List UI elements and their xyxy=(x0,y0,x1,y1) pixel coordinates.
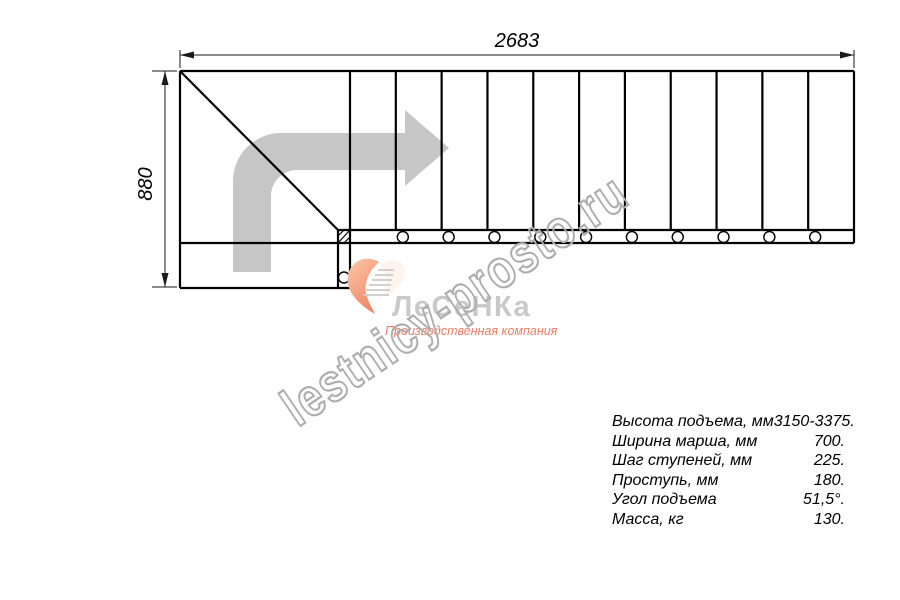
spec-value: 700. xyxy=(814,432,845,452)
spec-label: Высота подъема, мм xyxy=(612,412,774,432)
spec-label: Проступь, мм xyxy=(612,471,718,491)
bolt-hole xyxy=(672,232,683,243)
dimension-left: 880 xyxy=(135,71,177,287)
dimension-top: 2683 xyxy=(180,30,854,68)
direction-arrow xyxy=(233,110,449,272)
spec-label: Угол подъема xyxy=(612,490,717,510)
spec-row: Шаг ступеней, мм225. xyxy=(612,451,845,471)
bolt-hole xyxy=(718,232,729,243)
dimension-left-label: 880 xyxy=(135,167,157,200)
spec-label: Масса, кг xyxy=(612,510,684,530)
bolt-hole xyxy=(626,232,637,243)
step-lines xyxy=(396,71,808,230)
logo-company-subtitle: Производственная компания xyxy=(385,324,560,338)
spec-row: Ширина марша, мм700. xyxy=(612,432,845,452)
spec-row: Высота подъема, мм3150-3375. xyxy=(612,412,845,432)
spec-label: Ширина марша, мм xyxy=(612,432,757,452)
bolt-hole xyxy=(489,232,500,243)
spec-value: 130. xyxy=(814,510,845,530)
spec-value: 51,5°. xyxy=(803,490,845,510)
spec-value: 180. xyxy=(814,471,845,491)
spec-row: Угол подъема51,5°. xyxy=(612,490,845,510)
bolt-hole xyxy=(443,232,454,243)
stringer-hatch xyxy=(338,230,350,243)
staircase-outline xyxy=(180,71,854,288)
spec-value: 3150-3375. xyxy=(774,412,855,432)
staircase-drawing-page: 2683 880 ЛеСеНКа xyxy=(0,0,900,600)
bolt-hole xyxy=(810,232,821,243)
bolt-hole xyxy=(581,232,592,243)
dimension-top-label: 2683 xyxy=(494,30,540,52)
spec-row: Проступь, мм180. xyxy=(612,471,845,491)
bolt-hole xyxy=(764,232,775,243)
bolt-hole xyxy=(535,232,546,243)
spec-label: Шаг ступеней, мм xyxy=(612,451,752,471)
bolt-circles xyxy=(339,232,821,284)
spec-value: 225. xyxy=(814,451,845,471)
specs-table: Высота подъема, мм3150-3375.Ширина марша… xyxy=(612,412,845,529)
logo-company-name: ЛеСеНКа xyxy=(392,291,562,324)
bolt-hole xyxy=(397,232,408,243)
spec-row: Масса, кг130. xyxy=(612,510,845,530)
